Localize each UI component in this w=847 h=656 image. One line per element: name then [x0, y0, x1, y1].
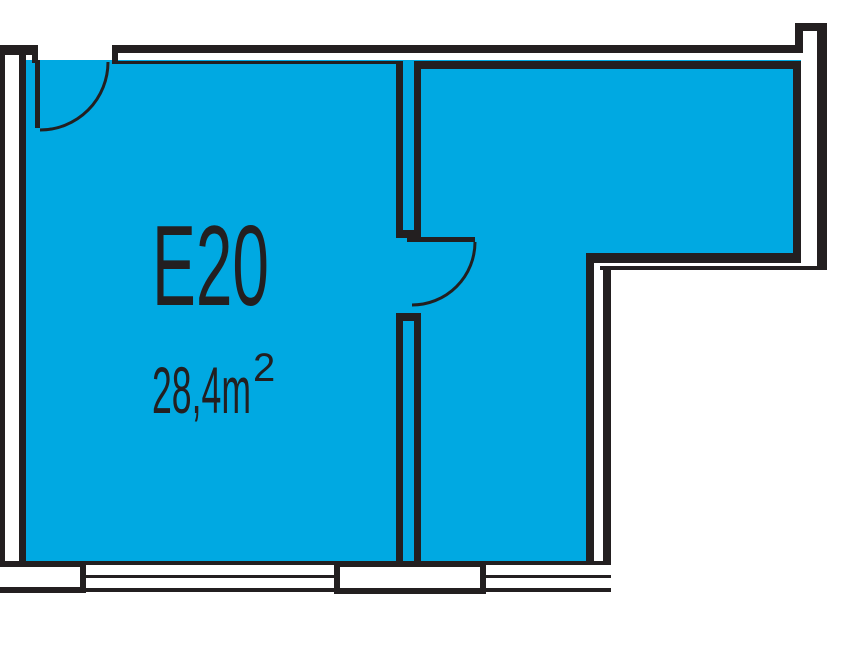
partition-lower-end-cap: [396, 313, 421, 321]
partition-lower-left-line: [396, 313, 403, 563]
unit-area-superscript: 2: [253, 346, 275, 390]
east-outer-wall: [817, 23, 827, 270]
east-outer-bottom-line: [600, 266, 827, 270]
west-wall-outer-line: [0, 53, 5, 566]
wing-bottom-wall: [586, 253, 801, 263]
floor-plan-drawing: E20 28,4m 2: [0, 0, 847, 656]
window-right-outer-line: [483, 575, 611, 578]
unit-floor-area: [26, 60, 801, 563]
west-wall-inner-line: [19, 55, 26, 561]
partition-upper-left-line: [396, 61, 403, 238]
window-left-inner-line: [83, 588, 337, 592]
top-wall-outer-right: [112, 45, 803, 53]
east-cavity-wall: [603, 266, 611, 565]
partition-lower-right-line: [414, 313, 421, 563]
interior-door-leaf: [407, 237, 475, 242]
window-pier-middle: [337, 564, 483, 591]
entry-door-jamb-right: [112, 45, 118, 63]
partition-upper-end-cap: [396, 230, 421, 238]
top-wall-inner-line-right: [414, 61, 801, 69]
step-inner-wall: [586, 253, 594, 563]
window-pier-left: [0, 564, 83, 590]
partition-upper-right-line: [414, 61, 421, 238]
top-wall-inner-line-left: [112, 61, 396, 64]
unit-area-label: 28,4m: [152, 353, 251, 427]
window-left-outer-line: [83, 575, 337, 578]
floor-plan-canvas: E20 28,4m 2: [0, 0, 847, 656]
unit-id-label: E20: [152, 203, 269, 330]
bottom-wall-inner-line: [22, 561, 611, 565]
entry-door-leaf: [35, 60, 40, 128]
window-right-inner-line: [483, 588, 611, 592]
east-inner-wall: [793, 61, 801, 263]
